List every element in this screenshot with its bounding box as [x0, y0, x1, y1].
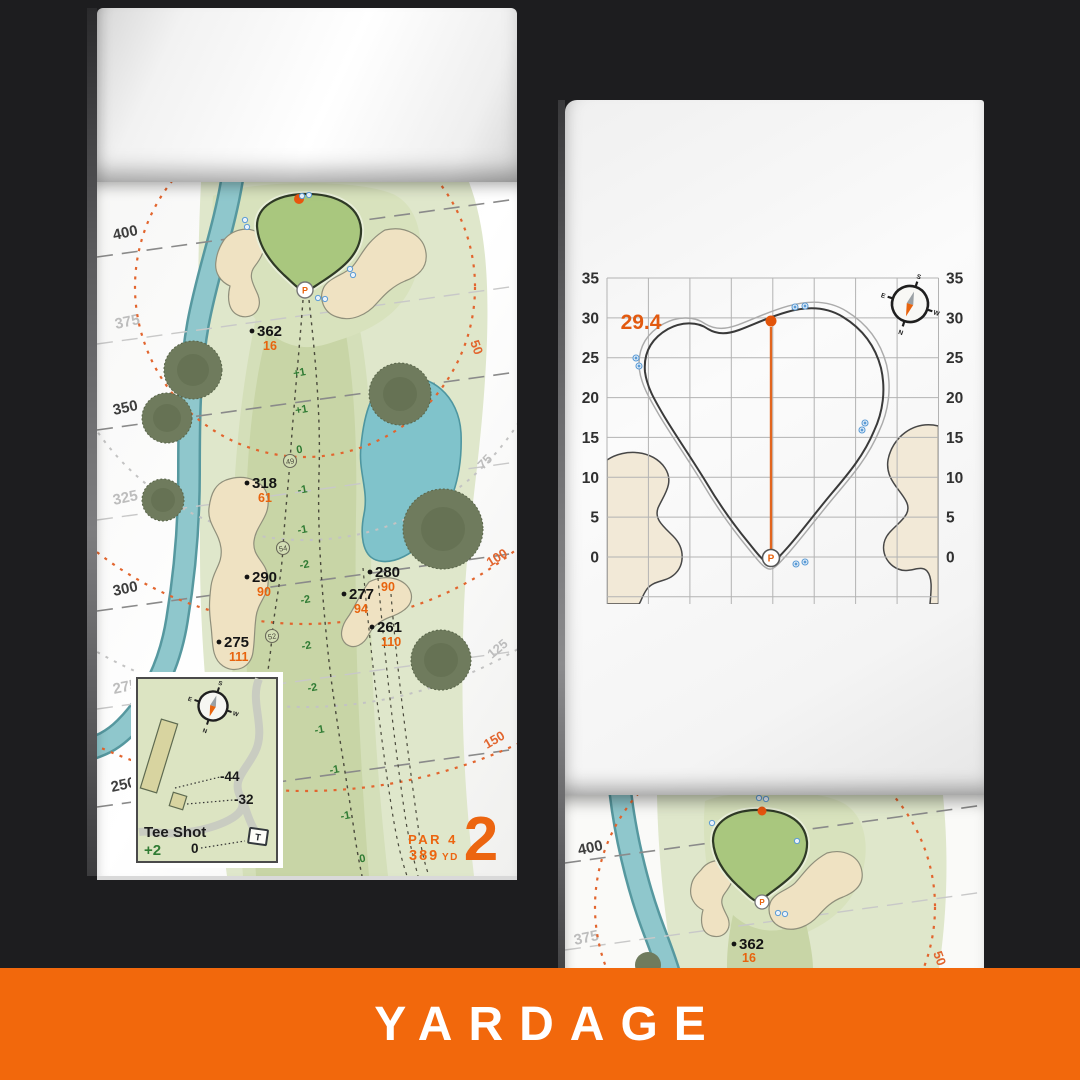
sprinkler-marks	[633, 303, 868, 567]
axis-labels-right: 35 30 25 20 15 10 5 0	[946, 271, 964, 567]
svg-text:5: 5	[590, 510, 599, 527]
svg-text:-1: -1	[314, 723, 326, 737]
svg-text:277: 277	[349, 586, 374, 603]
svg-text:275: 275	[224, 634, 249, 651]
hole-map: 400 375 350 325 300 275 250	[97, 182, 517, 876]
tee-zero: 0	[191, 841, 199, 856]
svg-text:-2: -2	[299, 558, 311, 572]
svg-text:35: 35	[582, 271, 600, 288]
svg-text:10: 10	[946, 470, 963, 487]
svg-text:362: 362	[257, 323, 282, 340]
hole-map-page: 400 375 350 325 300 275 250	[97, 182, 517, 876]
banner-title: YARDAGE	[358, 997, 722, 1052]
svg-text:90: 90	[257, 585, 271, 599]
svg-text:P: P	[768, 554, 775, 565]
left-book-flipped-page	[97, 8, 517, 182]
svg-text:90: 90	[381, 580, 395, 594]
svg-text:261: 261	[377, 619, 402, 636]
left-book-page-edge	[97, 876, 517, 880]
svg-text:61: 61	[258, 491, 272, 505]
green-detail-chart: 35 30 25 20 15 10 5 0 35 30 25 20 15 10 …	[565, 100, 984, 795]
svg-text:16: 16	[263, 339, 277, 353]
svg-text:W: W	[932, 309, 941, 318]
svg-text:25: 25	[946, 350, 964, 367]
svg-text:+1: +1	[292, 366, 306, 380]
tee-dist-a: -44	[220, 769, 240, 784]
svg-text:P: P	[759, 898, 765, 907]
svg-text:-1: -1	[340, 809, 352, 823]
green-entry-marker: P	[297, 282, 313, 298]
green-detail-page: 35 30 25 20 15 10 5 0 35 30 25 20 15 10 …	[565, 100, 984, 795]
tee-marker-icon: T	[248, 828, 268, 845]
tee-shot-inset: -44 -32 Tee Shot +2 0 T	[134, 673, 280, 865]
yards-number: 389	[409, 848, 439, 864]
par-label: PAR 4	[408, 832, 458, 847]
pin-dot	[766, 316, 777, 327]
next-hole-map-page: 400 375 50 P	[565, 795, 984, 968]
svg-text:49: 49	[285, 456, 295, 466]
svg-text:318: 318	[252, 475, 277, 492]
yardage-book-scene: 400 375 350 325 300 275 250	[0, 0, 1080, 1080]
tee-shot-title: Tee Shot	[144, 824, 206, 841]
left-book-spine-edge	[87, 8, 97, 876]
right-book: 35 30 25 20 15 10 5 0 35 30 25 20 15 10 …	[565, 100, 984, 968]
svg-text:290: 290	[252, 569, 277, 586]
svg-text:-2: -2	[301, 639, 313, 653]
svg-text:0: 0	[590, 550, 599, 567]
pin-depth-value: 29.4	[621, 311, 662, 334]
svg-text:-1: -1	[297, 483, 309, 497]
hole-number: 2	[464, 805, 498, 874]
pin-position-dot	[758, 807, 767, 816]
svg-text:20: 20	[582, 390, 599, 407]
left-book: 400 375 350 325 300 275 250	[97, 8, 517, 876]
axis-labels-left: 35 30 25 20 15 10 5 0	[582, 271, 600, 567]
yardage-banner: YARDAGE	[0, 968, 1080, 1080]
svg-text:54: 54	[278, 543, 288, 553]
svg-text:20: 20	[946, 390, 963, 407]
svg-text:S: S	[916, 273, 923, 281]
svg-text:94: 94	[354, 602, 368, 616]
svg-text:16: 16	[742, 951, 756, 965]
svg-text:52: 52	[267, 631, 277, 641]
yards-unit: YD	[442, 852, 459, 863]
svg-text:15: 15	[946, 430, 964, 447]
svg-text:280: 280	[375, 564, 400, 581]
svg-text:5: 5	[946, 510, 955, 527]
tee-shot-score: +2	[144, 842, 161, 859]
svg-text:25: 25	[582, 350, 600, 367]
right-book-spine-edge	[558, 100, 565, 968]
svg-text:0: 0	[946, 550, 955, 567]
svg-text:110: 110	[381, 635, 401, 649]
svg-text:15: 15	[582, 430, 600, 447]
svg-text:30: 30	[582, 310, 599, 327]
svg-text:30: 30	[946, 310, 963, 327]
green-outline	[639, 302, 889, 569]
svg-text:P: P	[302, 286, 308, 296]
svg-text:10: 10	[582, 470, 599, 487]
svg-text:+1: +1	[294, 403, 308, 417]
svg-text:35: 35	[946, 271, 964, 288]
svg-text:E: E	[880, 292, 887, 300]
next-hole-map: 400 375 50 P	[565, 795, 984, 968]
svg-text:-2: -2	[307, 681, 319, 695]
svg-text:-2: -2	[300, 593, 312, 607]
svg-text:-1: -1	[297, 523, 309, 537]
tee-dist-b: -32	[234, 792, 254, 807]
svg-text:N: N	[897, 329, 904, 337]
svg-text:-1: -1	[329, 763, 341, 777]
svg-text:111: 111	[229, 650, 249, 664]
